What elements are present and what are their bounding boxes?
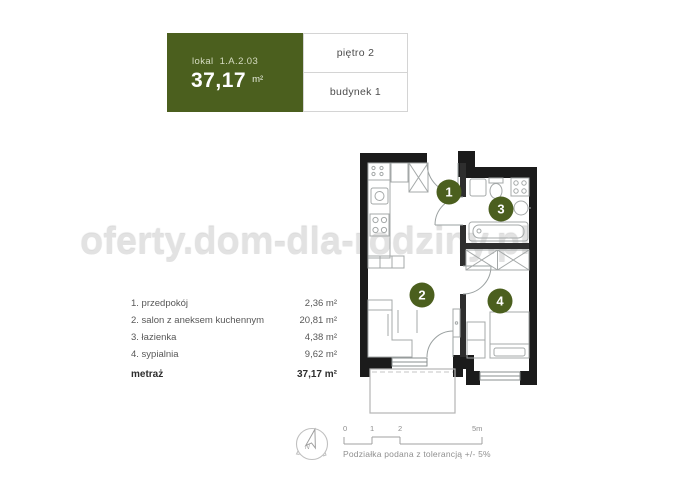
listing-floorplan-page: lokal 1.A.2.03 37,17m² piętro 2 budynek … <box>0 0 681 500</box>
balcony <box>370 369 455 413</box>
unit-info-box: lokal 1.A.2.03 37,17m² <box>167 33 303 112</box>
unit-meta-cells: piętro 2 budynek 1 <box>303 33 408 112</box>
legend-row: 1. przedpokój 2,36 m² <box>131 295 337 312</box>
bath-cabinet-icon <box>470 179 486 196</box>
legend-total-area: 37,17 m² <box>297 366 337 383</box>
kitchen-sink-icon <box>371 188 388 204</box>
scale-tick-1: 1 <box>370 424 374 433</box>
room-badge-2: 2 <box>410 283 435 308</box>
scale-bar: 0 1 2 5m <box>343 424 487 448</box>
legend-room-area: 2,36 m² <box>305 295 337 312</box>
legend-room-name: 1. przedpokój <box>131 295 188 312</box>
scale-bar-graphic <box>343 434 485 446</box>
legend-room-area: 20,81 m² <box>300 312 338 329</box>
legend-room-name: 2. salon z aneksem kuchennym <box>131 312 264 329</box>
legend-row: 3. łazienka 4,38 m² <box>131 329 337 346</box>
compass-north-label: N <box>305 444 310 451</box>
bedroom-window <box>480 372 520 380</box>
sofa-icon <box>368 300 412 357</box>
radiator-icon <box>453 309 460 337</box>
room-legend: 1. przedpokój 2,36 m² 2. salon z aneksem… <box>131 295 337 383</box>
bath-sink-icon <box>514 201 531 215</box>
legend-room-name: 3. łazienka <box>131 329 176 346</box>
svg-text:1: 1 <box>445 185 452 200</box>
unit-area: 37,17m² <box>191 69 263 93</box>
room-badge-1: 1 <box>437 180 462 205</box>
legend-room-area: 9,62 m² <box>305 346 337 363</box>
unit-area-value: 37,17 <box>191 69 246 92</box>
tolerance-note: Podziałka podana z tolerancją +/- 5% <box>343 449 491 459</box>
room-badge-3: 3 <box>489 197 514 222</box>
building-cell: budynek 1 <box>304 73 407 111</box>
scale-tick-0: 0 <box>343 424 347 433</box>
legend-total-label: metraż <box>131 366 163 383</box>
kitchen-hob-icon <box>370 214 389 236</box>
compass-icon: N <box>293 423 331 463</box>
kitchen-drainer <box>368 163 390 180</box>
floor-cell: piętro 2 <box>304 34 407 73</box>
scale-tick-2: 2 <box>398 424 402 433</box>
svg-text:4: 4 <box>496 294 504 309</box>
legend-row: 4. sypialnia 9,62 m² <box>131 346 337 363</box>
table-icon <box>398 310 417 333</box>
balcony-door <box>427 331 453 357</box>
scale-tick-5m: 5m <box>472 424 482 433</box>
room-badge-4: 4 <box>488 289 513 314</box>
floor-plan: 1 2 3 4 <box>350 146 546 422</box>
kitchen-counter <box>368 163 390 258</box>
legend-row: 2. salon z aneksem kuchennym 20,81 m² <box>131 312 337 329</box>
bathtub-icon <box>469 222 528 241</box>
hall-wardrobe-icon <box>409 163 428 192</box>
legend-room-area: 4,38 m² <box>305 329 337 346</box>
bed-icon <box>490 312 529 358</box>
legend-total-row: metraż 37,17 m² <box>131 366 337 383</box>
svg-text:3: 3 <box>497 202 504 217</box>
living-room-window <box>392 358 427 366</box>
toilet-icon <box>489 178 503 199</box>
dresser-icon <box>467 322 485 358</box>
washer-icon <box>511 178 529 196</box>
fridge-icon <box>391 163 408 182</box>
legend-room-name: 4. sypialnia <box>131 346 179 363</box>
unit-number-label: lokal 1.A.2.03 <box>192 56 258 67</box>
unit-area-unit: m² <box>252 74 263 85</box>
bedroom-wardrobe-icon <box>466 250 529 270</box>
svg-text:2: 2 <box>418 288 425 303</box>
